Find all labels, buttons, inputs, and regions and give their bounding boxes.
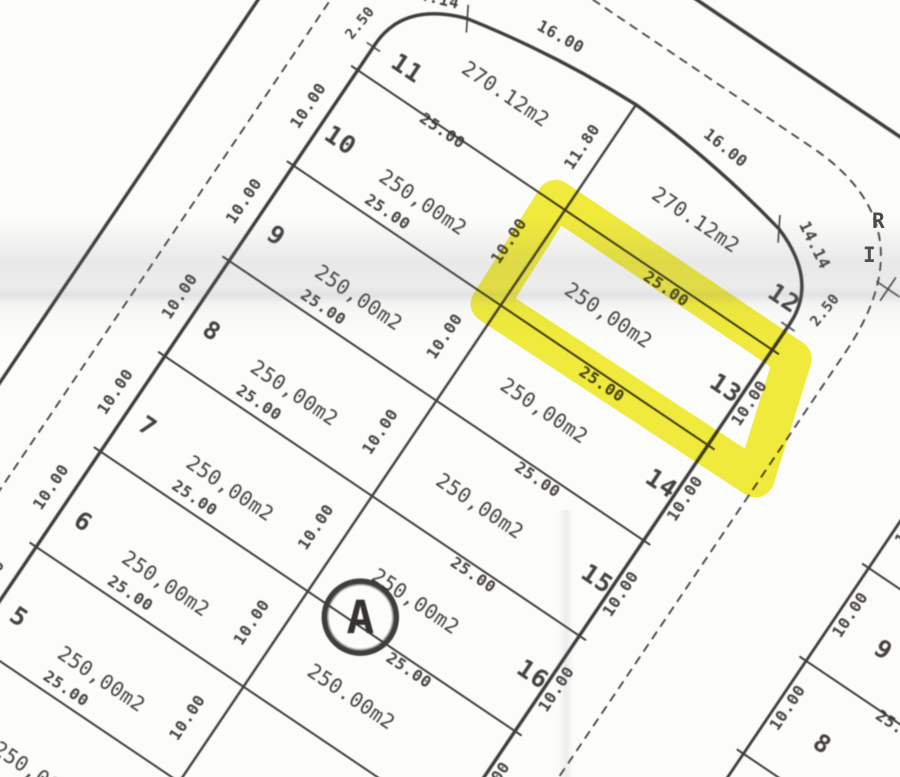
- edge-partial-letter-2: I: [863, 243, 876, 267]
- block-label-text: A: [346, 590, 374, 644]
- scanned-plat-page: A 11 10 9 8 7 6 5 270.12m2 250,00m2 250,…: [0, 0, 900, 777]
- plat-map-svg: A 11 10 9 8 7 6 5 270.12m2 250,00m2 250,…: [0, 0, 900, 777]
- edge-partial-letter-1: R: [872, 209, 885, 233]
